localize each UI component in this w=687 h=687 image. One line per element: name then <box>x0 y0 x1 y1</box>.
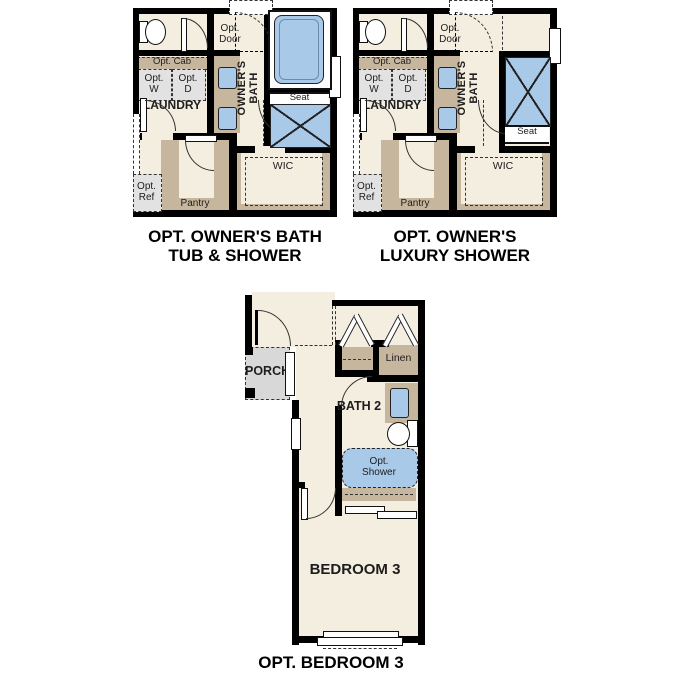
opt-shower-line1: Opt. <box>370 456 389 467</box>
opt-dryer-line1: Opt. <box>179 73 198 84</box>
owners-bath-label: OWNER'S BATH <box>448 48 488 128</box>
wall-segment <box>418 300 425 645</box>
opt-door-line2: Door <box>439 34 461 45</box>
window <box>285 352 295 396</box>
wall-segment <box>335 406 342 516</box>
porch-label: PORCH <box>245 365 288 379</box>
wall-segment <box>505 146 557 153</box>
plan-caption: OPT. BEDROOM 3 <box>229 653 433 672</box>
wall-opening-dashed <box>353 114 360 174</box>
wall-segment <box>229 133 237 217</box>
plan-caption: OPT. OWNER'S LUXURY SHOWER <box>343 227 567 265</box>
window <box>317 637 403 646</box>
opt-ref-label: Opt. Ref <box>353 176 380 208</box>
opt-washer-line2: W <box>369 84 378 95</box>
caption-line1: OPT. BEDROOM 3 <box>229 653 433 672</box>
caption-line1: OPT. OWNER'S <box>343 227 567 246</box>
opt-door-label: Opt. Door <box>213 21 247 47</box>
owners-bath-line2: BATH <box>468 72 480 103</box>
opt-dryer-line2: D <box>184 84 191 95</box>
opt-dryer-label: Opt. D <box>392 70 424 98</box>
caption-line2: TUB & SHOWER <box>123 246 347 265</box>
shower-fixture <box>505 57 551 127</box>
opt-shower-label: Opt. Shower <box>342 451 416 483</box>
pantry-label: Pantry <box>383 198 447 209</box>
plan-caption: OPT. OWNER'S BATH TUB & SHOWER <box>123 227 347 265</box>
opt-dryer-line1: Opt. <box>399 73 418 84</box>
opt-washer-line1: Opt. <box>145 73 164 84</box>
opt-washer-label: Opt. W <box>358 70 390 98</box>
wall-opening-dashed <box>335 306 336 345</box>
wall-opening-dashed <box>295 345 332 346</box>
wall-segment <box>335 345 342 376</box>
floor <box>296 347 335 400</box>
linen-label: Linen <box>379 353 418 365</box>
caption-line1: OPT. OWNER'S BATH <box>123 227 347 246</box>
opt-ref-line1: Opt. <box>357 181 376 192</box>
window <box>291 418 301 450</box>
opt-ref-line2: Ref <box>139 192 155 203</box>
floorplan-opt-bedroom-3: Linen PORCH BATH 2 Opt. Shower <box>237 290 425 655</box>
wall-segment <box>457 146 475 153</box>
floorplan-sheet: { "colors": { "background": "#ffffff", "… <box>0 0 687 687</box>
tub-inner-line <box>279 19 319 80</box>
wall-opening-dashed <box>332 306 333 345</box>
closet-rod-line <box>345 494 413 495</box>
opt-door-line1: Opt. <box>441 23 460 34</box>
opt-washer-label: Opt. W <box>138 70 170 98</box>
opt-door-line1: Opt. <box>221 23 240 34</box>
caption-line2: LUXURY SHOWER <box>343 246 567 265</box>
toilet-bowl <box>365 19 386 45</box>
pantry-label: Pantry <box>163 198 227 209</box>
owners-bath-label: OWNER'S BATH <box>228 48 268 128</box>
toilet-bowl <box>387 422 410 446</box>
floorplan-opt-owners-bath-tub-shower: Opt. Cab Opt. W Opt. D LAUNDRY Pantry WI… <box>133 0 337 222</box>
floorplan-opt-owners-luxury-shower: Opt. Cab Opt. W Opt. D LAUNDRY Pantry WI… <box>353 0 557 222</box>
seat-label: Seat <box>505 127 549 137</box>
porch-post <box>245 347 253 355</box>
window-dashed-line <box>323 648 397 649</box>
opt-ref-label: Opt. Ref <box>133 176 160 208</box>
wall-segment <box>245 295 252 347</box>
opt-cab-label: Opt. Cab <box>357 57 427 67</box>
shower-glass-line <box>502 16 503 50</box>
bedroom3-label: BEDROOM 3 <box>292 562 418 579</box>
wall-segment <box>449 133 457 217</box>
opt-washer-line2: W <box>149 84 158 95</box>
bypass-door <box>377 511 417 519</box>
opt-shower-line2: Shower <box>362 467 396 478</box>
toilet-bowl <box>145 19 166 45</box>
wall-opening-dashed <box>133 114 140 174</box>
owners-bath-line2: BATH <box>248 72 260 103</box>
wall-segment <box>237 146 255 153</box>
opt-dryer-line2: D <box>404 84 411 95</box>
wall-segment <box>332 300 425 306</box>
owners-bath-line1: OWNER'S <box>456 61 468 116</box>
opt-cab-label: Opt. Cab <box>137 57 207 67</box>
shower-fixture <box>270 104 331 148</box>
opt-door-label: Opt. Door <box>433 21 467 47</box>
opt-ref-line1: Opt. <box>137 181 156 192</box>
bath2-label: BATH 2 <box>333 400 385 414</box>
opt-door-line2: Door <box>219 34 241 45</box>
opt-ref-line2: Ref <box>359 192 375 203</box>
porch-post <box>245 388 255 398</box>
opt-dryer-label: Opt. D <box>172 70 204 98</box>
sink-fixture <box>390 388 409 418</box>
wic-label: WIC <box>465 161 541 173</box>
seat-label: Seat <box>270 93 329 103</box>
wic-label: WIC <box>245 161 321 173</box>
opt-washer-line1: Opt. <box>365 73 384 84</box>
wall-segment <box>133 50 213 56</box>
wall-segment <box>367 375 418 382</box>
wall-segment <box>353 50 433 56</box>
owners-bath-line1: OWNER'S <box>236 61 248 116</box>
closet-rod-line <box>343 359 371 360</box>
